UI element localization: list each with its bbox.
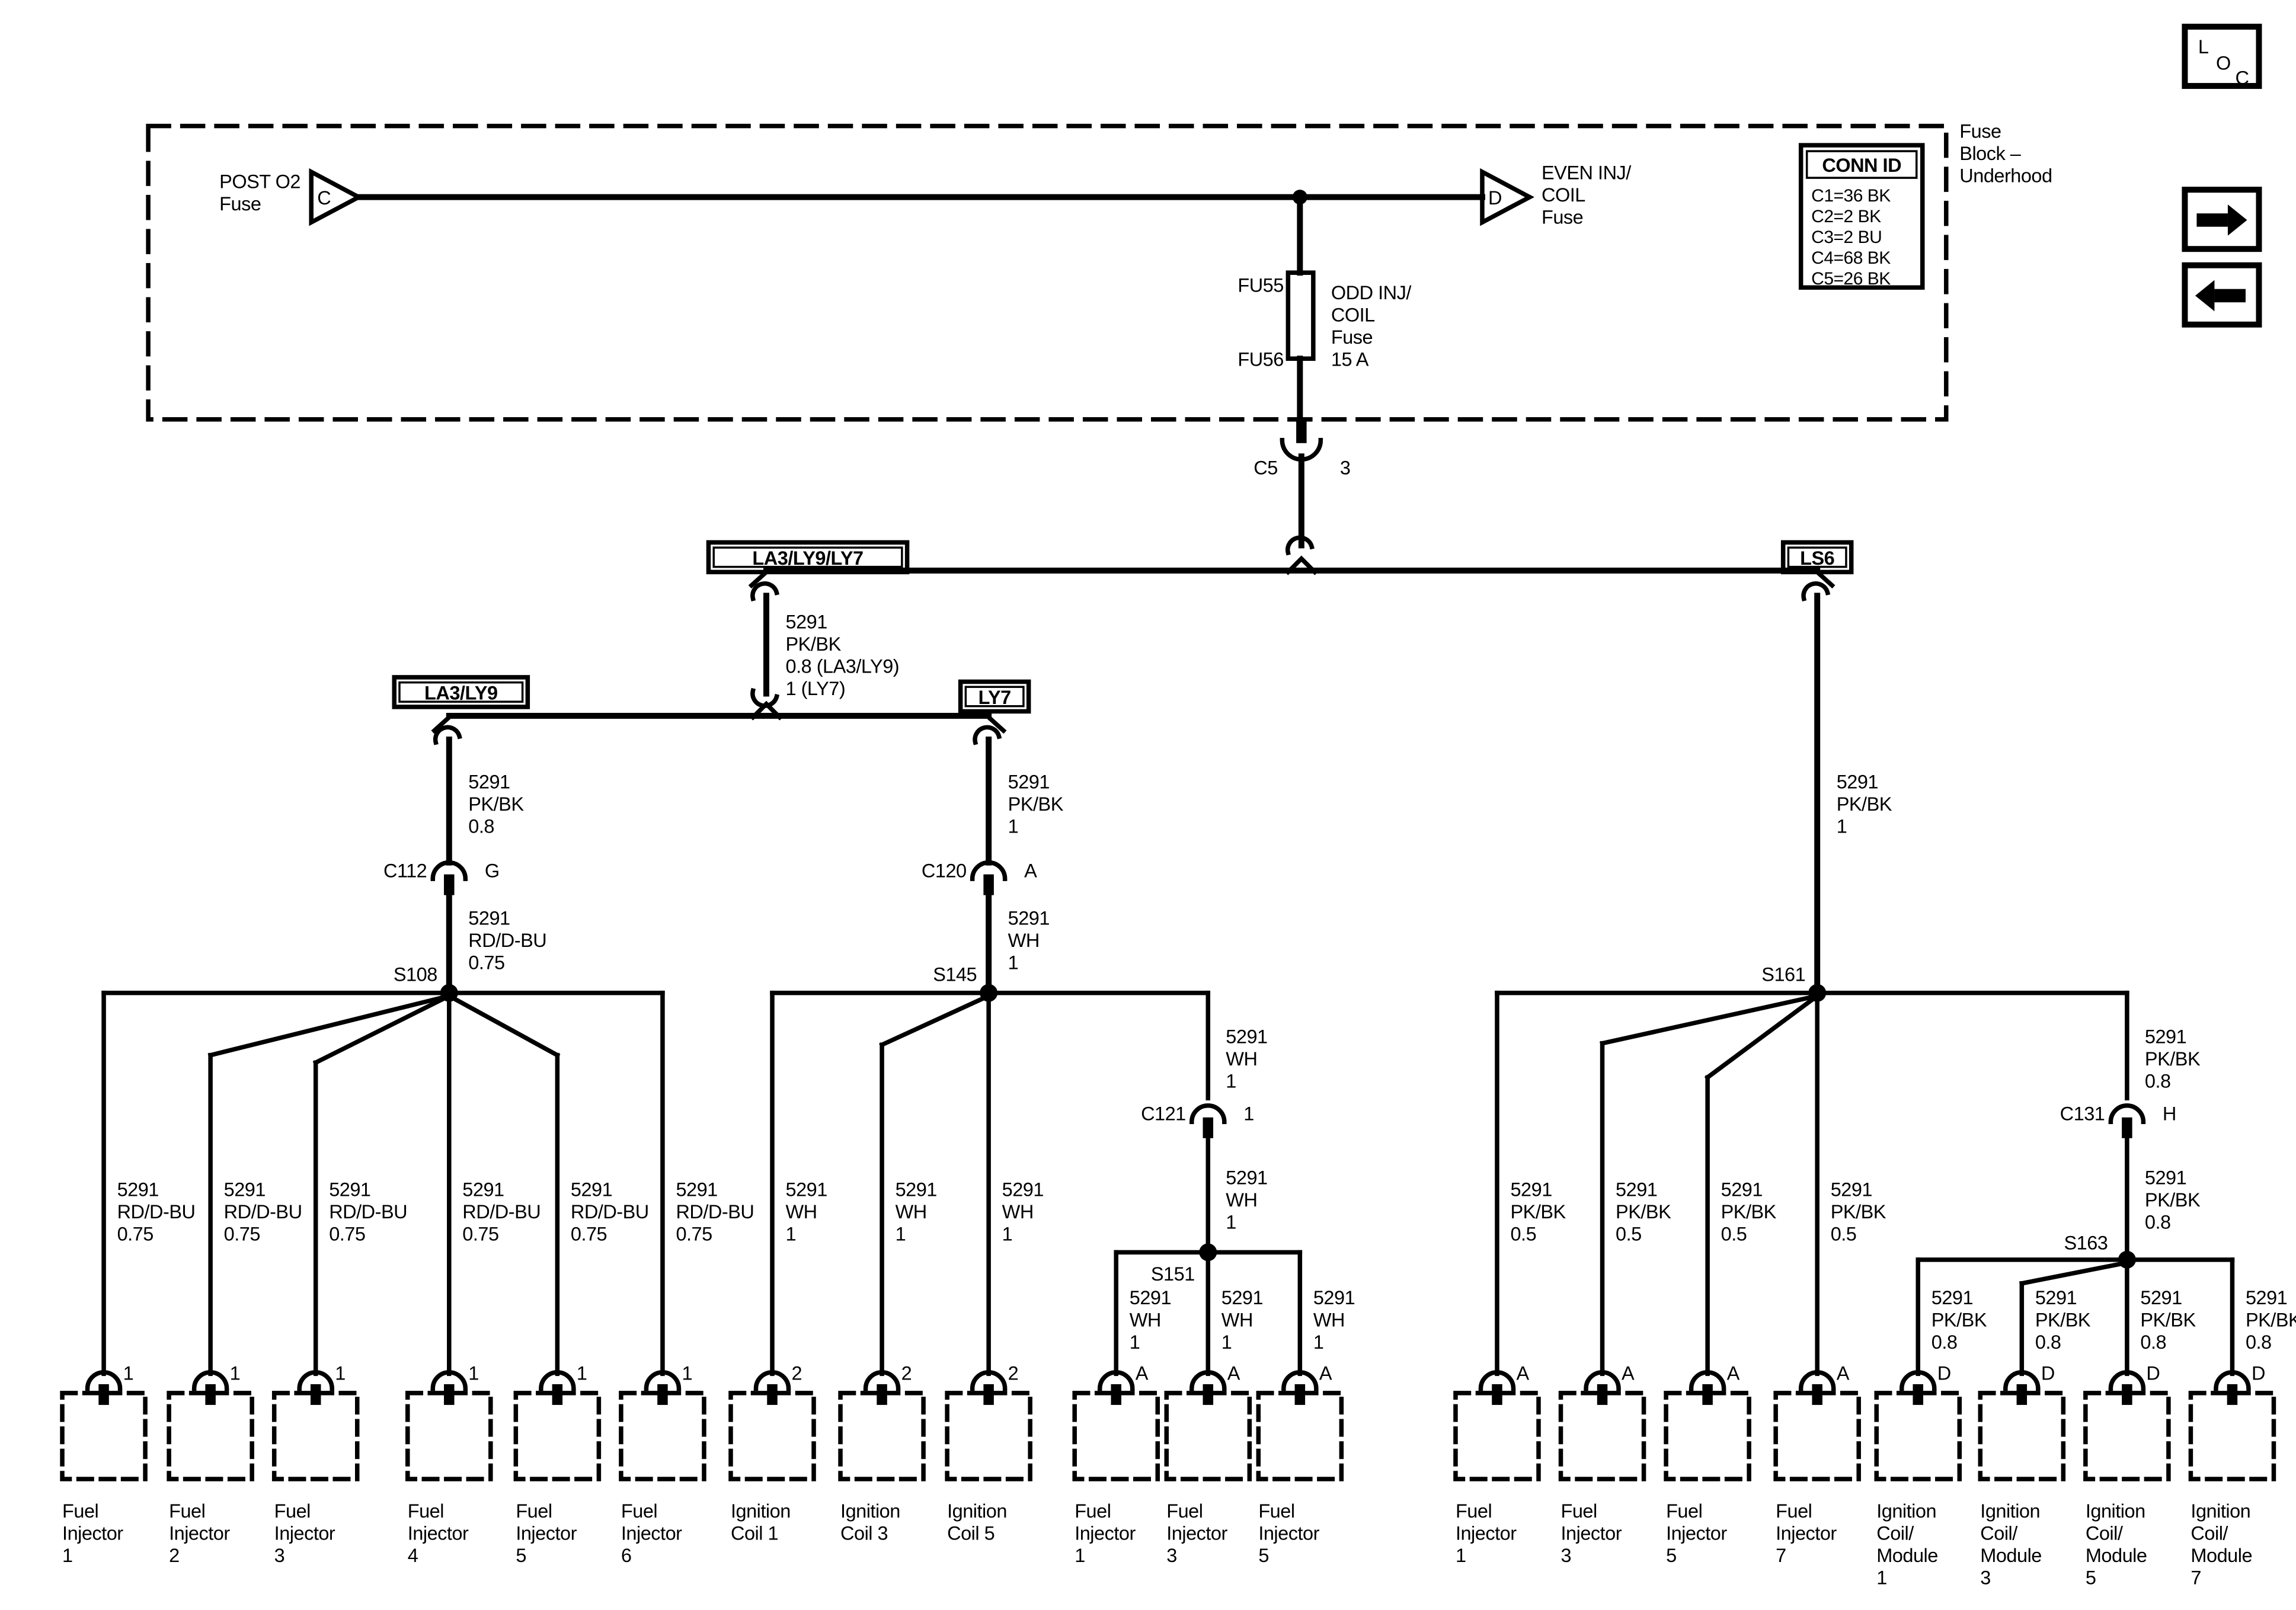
component-connector-icon [194,1372,227,1405]
component-label: Injector [169,1523,230,1544]
conn-id-row: C2=2 BK [1811,207,1881,226]
component-box [274,1393,357,1479]
component-label: Fuel [1258,1500,1294,1522]
svg-text:PK/BK: PK/BK [2145,1189,2201,1211]
component-label: Module [2191,1545,2252,1566]
component-connector-icon [1480,1372,1513,1405]
pin-label: A [1727,1362,1740,1384]
wire-label-c121-lower: 5291 WH 1 [1226,1167,1267,1233]
svg-text:Fuse: Fuse [1959,121,2001,142]
wire-label: 5291 [1221,1287,1263,1308]
component-label: Coil 3 [840,1523,888,1544]
svg-text:5291: 5291 [1837,772,1878,793]
wire-label: RD/D-BU [329,1201,407,1222]
wire-label: 0.75 [329,1223,365,1244]
svg-text:5291: 5291 [2145,1026,2186,1048]
pin-label: D [1937,1362,1951,1384]
pin-label: A [1227,1362,1240,1384]
component-connector-icon [541,1372,574,1405]
component-box [62,1393,145,1479]
component-label: Ignition [840,1500,900,1522]
component-connector-icon [433,1372,465,1405]
pin-label: A [1516,1362,1529,1384]
pin-label: 1 [682,1362,692,1384]
component-label: Ignition [1876,1500,1936,1522]
svg-text:0.8: 0.8 [468,816,494,837]
wire-label: 5291 [571,1179,612,1200]
component-box [169,1393,252,1479]
component-label: 5 [1666,1545,1677,1566]
wire-label: PK/BK [1721,1201,1777,1222]
conn-id-row: C3=2 BU [1811,228,1882,247]
component-connector-icon [756,1372,788,1405]
wire-label: 5291 [117,1179,159,1200]
wire-label: PK/BK [1831,1201,1886,1222]
svg-text:Block –: Block – [1959,143,2022,164]
svg-text:LA3/LY9/LY7: LA3/LY9/LY7 [752,548,863,569]
wire-label-c131-upper: 5291 PK/BK 0.8 [2145,1026,2201,1092]
pin-label: A [1319,1362,1332,1384]
wire-label: 0.8 [2246,1331,2272,1353]
wire-label: RD/D-BU [462,1201,541,1222]
component-label: Coil 1 [731,1523,778,1544]
component-label: Fuel [1075,1500,1111,1522]
wire-label: 5291 [786,1179,827,1200]
svg-text:5291: 5291 [1226,1167,1267,1188]
svg-text:1: 1 [1226,1071,1236,1092]
component-connector-icon [2006,1372,2038,1405]
component-drop: 5291PK/BK0.8DIgnitionCoil/Module3 [1980,1287,2091,1589]
wire-label: PK/BK [1616,1201,1671,1222]
splice-dot-s151 [1199,1243,1217,1261]
component-box [408,1393,491,1479]
svg-text:0.8 (LA3/LY9): 0.8 (LA3/LY9) [786,655,900,677]
wire-label: 5291 [1616,1179,1657,1200]
fuse-id-top: FU55 [1237,275,1283,296]
pin-label: 1 [577,1362,587,1384]
svg-text:PK/BK: PK/BK [468,793,524,815]
component-connector-icon [1691,1372,1724,1405]
inline-connector-c131: C131 H [2060,1103,2176,1138]
svg-text:PK/BK: PK/BK [2145,1048,2201,1070]
pin-label: D [2041,1362,2055,1384]
pin-label: A [1136,1362,1149,1384]
component-label: 1 [1456,1545,1466,1566]
svg-text:PK/BK: PK/BK [786,633,842,655]
wire-label: RD/D-BU [571,1201,649,1222]
wire-label: 1 [1130,1331,1140,1353]
wire-label: 0.5 [1616,1223,1642,1244]
svg-text:1: 1 [1243,1103,1254,1125]
wire-label: 1 [896,1223,906,1244]
component-label: Coil 5 [947,1523,994,1544]
wire-label: 5291 [2035,1287,2077,1308]
pin-label: A [1622,1362,1635,1384]
wire-label: PK/BK [2035,1309,2091,1330]
wire-label-c121-upper: 5291 WH 1 [1226,1026,1267,1092]
component-drop: 5291PK/BK0.5AFuelInjector7 [1776,1179,1886,1566]
component-label: Module [1876,1545,1938,1566]
component-label: Injector [1456,1523,1517,1544]
svg-text:COIL: COIL [1331,305,1375,326]
svg-text:C121: C121 [1141,1103,1186,1125]
component-label: 1 [1876,1567,1887,1589]
splice-dot-s108 [440,984,458,1002]
component-label: Injector [1258,1523,1319,1544]
component-connector-icon [973,1372,1005,1405]
svg-text:EVEN INJ/: EVEN INJ/ [1542,162,1632,184]
splice-label-s161: S161 [1761,964,1805,985]
wire-label: 5291 [224,1179,266,1200]
wiring [104,197,2232,1374]
wire-label: 5291 [896,1179,937,1200]
post-o2-fuse-source: POST O2 Fuse C [219,171,359,223]
wire-label: 5291 [1510,1179,1552,1200]
component-drop: 5291WH1AFuelInjector3 [1166,1287,1263,1566]
svg-text:WH: WH [1226,1189,1257,1211]
splice-dot-s163 [2118,1251,2136,1269]
component-drop: 5291WH12IgnitionCoil 3 [840,1179,937,1544]
component-connector-icon [866,1372,898,1405]
harness-tag-mid: LY7 [961,681,1029,711]
component-drop: 5291PK/BK0.5AFuelInjector5 [1666,1179,1777,1566]
wire-label: WH [1221,1309,1253,1330]
splice-label-s145: S145 [933,964,977,985]
svg-text:PK/BK: PK/BK [1837,793,1892,815]
splice-dot-s145 [980,984,997,1002]
wire-label-ls6: 5291 PK/BK 1 [1837,772,1892,837]
harness-tag-main: LA3/LY9/LY7 [708,542,907,572]
svg-text:5291: 5291 [786,611,827,632]
harness-tag-left: LA3/LY9 [394,677,527,707]
component-drop: 5291PK/BK0.8DIgnitionCoil/Module5 [2086,1287,2196,1589]
fuse-icon [1288,273,1313,359]
component-drop: 5291PK/BK0.8DIgnitionCoil/Module1 [1876,1287,1987,1589]
component-label: Ignition [2191,1500,2250,1522]
svg-text:Fuse: Fuse [1542,207,1583,228]
svg-text:5291: 5291 [2145,1167,2186,1188]
wire-label: 0.8 [2140,1331,2166,1353]
svg-text:Fuse: Fuse [1331,327,1373,348]
component-box [731,1393,814,1479]
svg-text:PK/BK: PK/BK [1008,793,1064,815]
component-label: Fuel [62,1500,98,1522]
pin-label: 2 [901,1362,912,1384]
odd-inj-coil-fuse: FU55 FU56 ODD INJ/ COIL Fuse 15 A [1237,273,1412,370]
inline-connector-c120: C120 A [922,860,1037,895]
wire-label: 0.5 [1721,1223,1747,1244]
wire-label: 0.75 [676,1223,712,1244]
svg-text:5291: 5291 [1008,772,1050,793]
component-label: 4 [408,1545,418,1566]
component-label: 5 [2086,1567,2096,1589]
component-label: 3 [274,1545,285,1566]
conn-id-row: C1=36 BK [1811,186,1891,206]
component-label: 1 [62,1545,73,1566]
component-label: Injector [1776,1523,1837,1544]
svg-text:1: 1 [1226,1211,1236,1233]
component-box [1666,1393,1749,1479]
component-label: Injector [1666,1523,1727,1544]
component-box [1561,1393,1644,1479]
wiring-diagram-canvas: L O C Fuse Block – Underhood CONN ID C1=… [0,0,2296,1609]
splice-label-s151: S151 [1151,1263,1195,1285]
component-box [516,1393,599,1479]
svg-text:0.75: 0.75 [468,952,504,974]
component-drop: 5291PK/BK0.8DIgnitionCoil/Module7 [2191,1287,2296,1589]
prev-page-button[interactable] [2185,265,2259,325]
wire-label: 1 [1313,1331,1324,1353]
arrow-right-icon [2196,204,2247,236]
wire-label: 5291 [329,1179,370,1200]
svg-text:1: 1 [1837,816,1847,837]
junction-dot [1293,190,1307,204]
arrow-left-icon [2195,280,2246,312]
fuse-block-outline [148,126,1946,420]
wire-label: WH [786,1201,817,1222]
wire-label: 5291 [1932,1287,1973,1308]
svg-text:POST O2: POST O2 [219,171,300,193]
inline-connector-c112: C112 G [383,860,500,895]
fuse-block-label: Fuse Block – Underhood [1959,121,2052,187]
svg-text:C131: C131 [2060,1103,2105,1125]
wire-label: WH [1130,1309,1161,1330]
component-connector-icon [646,1372,679,1405]
wire-label: 5291 [462,1179,504,1200]
component-connector-icon [1902,1372,1934,1405]
svg-text:5291: 5291 [468,908,510,929]
svg-text:0.8: 0.8 [2145,1211,2171,1233]
component-label: Fuel [169,1500,205,1522]
component-box [621,1393,704,1479]
splice-label-s108: S108 [394,964,437,985]
wire-label: PK/BK [1510,1201,1566,1222]
conn-id-table: CONN ID C1=36 BK C2=2 BK C3=2 BU C4=68 B… [1801,145,1923,289]
harness-tag-right: LS6 [1783,542,1851,572]
wire-label: 1 [1002,1223,1013,1244]
component-label: Coil/ [2191,1523,2228,1544]
svg-text:Underhood: Underhood [1959,165,2052,187]
component-connector-icon [1192,1372,1224,1405]
wire-label-ly7-upper: 5291 PK/BK 1 [1008,772,1064,837]
svg-text:COIL: COIL [1542,184,1585,206]
svg-text:Fuse: Fuse [219,193,261,215]
svg-text:WH: WH [1008,930,1040,951]
component-label: Injector [516,1523,577,1544]
wire-label: 0.75 [571,1223,607,1244]
wire-label: 5291 [676,1179,717,1200]
component-label: Fuel [1666,1500,1702,1522]
splice-dot-s161 [1808,984,1826,1002]
component-label: Injector [1561,1523,1622,1544]
next-page-button[interactable] [2185,190,2259,249]
component-box [1166,1393,1249,1479]
pin-label: 1 [468,1362,479,1384]
component-label: 1 [1075,1545,1085,1566]
component-connector-icon [88,1372,120,1405]
wire-label: PK/BK [2246,1309,2296,1330]
pin-label: 1 [230,1362,241,1384]
conn-id-title: CONN ID [1822,155,1901,176]
component-label: Ignition [1980,1500,2040,1522]
wire-label: 5291 [1130,1287,1171,1308]
svg-text:LS6: LS6 [1800,548,1834,569]
component-box [2191,1393,2273,1479]
svg-text:C120: C120 [922,860,967,882]
svg-text:ODD INJ/: ODD INJ/ [1331,282,1412,303]
component-label: Fuel [1561,1500,1597,1522]
wire-label: 0.8 [1932,1331,1958,1353]
component-drop: 5291WH12IgnitionCoil 5 [947,1179,1044,1544]
wire-label: 5291 [1721,1179,1763,1200]
splice-label-s163: S163 [2064,1232,2108,1253]
component-connector-icon [1100,1372,1133,1405]
component-connector-icon [1586,1372,1619,1405]
component-label: Injector [408,1523,469,1544]
loc-letter-c: C [2235,68,2249,89]
component-box [1980,1393,2063,1479]
component-label: Injector [274,1523,335,1544]
component-label: 7 [1776,1545,1786,1566]
pin-label: 2 [1008,1362,1019,1384]
wire-label: 5291 [1313,1287,1355,1308]
component-label: Coil/ [1980,1523,2018,1544]
svg-text:15 A: 15 A [1331,349,1369,370]
component-label: Fuel [516,1500,552,1522]
component-label: Fuel [1456,1500,1492,1522]
component-connector-icon [299,1372,332,1405]
wire-label: 5291 [1831,1179,1872,1200]
wire-label-main-feed: 5291 PK/BK 0.8 (LA3/LY9) 1 (LY7) [786,611,900,699]
component-label: Fuel [1776,1500,1812,1522]
component-label: Ignition [947,1500,1007,1522]
component-label: Module [2086,1545,2147,1566]
component-label: Fuel [408,1500,444,1522]
component-label: 5 [516,1545,526,1566]
svg-text:1: 1 [1008,816,1019,837]
svg-text:WH: WH [1226,1048,1257,1070]
svg-text:5291: 5291 [468,772,510,793]
wire-label: 0.75 [462,1223,498,1244]
component-label: Fuel [274,1500,311,1522]
wire-label: 5291 [2140,1287,2182,1308]
component-label: 7 [2191,1567,2201,1589]
wire-label-la3ly9-lower: 5291 RD/D-BU 0.75 [468,908,546,974]
component-connector-icon [2110,1372,2143,1405]
pin-label: 2 [792,1362,802,1384]
component-box [1776,1393,1859,1479]
svg-text:1 (LY7): 1 (LY7) [786,678,846,699]
wire-label: 0.8 [2035,1331,2061,1353]
svg-text:G: G [485,860,500,882]
triangle-d-pin: D [1488,187,1502,209]
component-label: 3 [1980,1567,1991,1589]
wire-label: WH [1002,1201,1034,1222]
even-inj-coil-fuse-dest: D EVEN INJ/ COIL Fuse [1482,162,1632,228]
svg-text:H: H [2163,1103,2176,1125]
component-label: Injector [1166,1523,1227,1544]
component-connector-icon [1284,1372,1316,1405]
wire-label: RD/D-BU [676,1201,754,1222]
svg-text:1: 1 [1008,952,1019,974]
wire-label: 0.5 [1831,1223,1857,1244]
svg-text:LA3/LY9: LA3/LY9 [424,682,498,703]
pin-label: D [2146,1362,2160,1384]
triangle-c-pin: C [317,187,331,209]
component-box [2086,1393,2169,1479]
wire-label: RD/D-BU [224,1201,302,1222]
loc-letter-l: L [2198,36,2209,57]
wire-label: 0.5 [1510,1223,1536,1244]
component-box [840,1393,923,1479]
component-label: Injector [1075,1523,1136,1544]
component-label: 2 [169,1545,180,1566]
svg-text:5291: 5291 [1008,908,1050,929]
component-label: Coil/ [1876,1523,1914,1544]
svg-text:C112: C112 [383,860,427,882]
svg-text:5291: 5291 [1226,1026,1267,1048]
pin-label: 1 [123,1362,134,1384]
component-label: Ignition [731,1500,791,1522]
wire-label: PK/BK [2140,1309,2196,1330]
component-drop: 5291WH1AFuelInjector5 [1258,1287,1355,1566]
component-label: 3 [1561,1545,1572,1566]
pin-label: A [1837,1362,1850,1384]
wire-label-la3ly9-upper: 5291 PK/BK 0.8 [468,772,524,837]
wire-label: 0.75 [224,1223,260,1244]
component-label: Module [1980,1545,2042,1566]
component-label: 6 [621,1545,632,1566]
component-drop: 5291WH12IgnitionCoil 1 [731,1179,827,1544]
svg-text:C5: C5 [1253,457,1278,478]
wire-label-ly7-lower: 5291 WH 1 [1008,908,1050,974]
component-drop: 5291PK/BK0.5AFuelInjector3 [1561,1179,1672,1566]
svg-text:RD/D-BU: RD/D-BU [468,930,546,951]
component-connector-icon [1801,1372,1834,1405]
wire-label: 0.75 [117,1223,154,1244]
wire-label: 5291 [1002,1179,1044,1200]
wire-label: RD/D-BU [117,1201,196,1222]
component-label: Injector [621,1523,682,1544]
component-connector-icon [2216,1372,2249,1405]
fuse-id-bottom: FU56 [1237,349,1283,370]
conn-id-row: C5=26 BK [1811,269,1891,289]
conn-id-row: C4=68 BK [1811,248,1891,268]
component-label: 3 [1166,1545,1177,1566]
pin-label: D [2252,1362,2265,1384]
svg-text:3: 3 [1340,457,1351,478]
component-box [947,1393,1030,1479]
svg-text:LY7: LY7 [978,687,1011,708]
inline-connector-c121: C121 1 [1141,1103,1254,1138]
loc-button[interactable]: L O C [2185,27,2259,89]
svg-text:A: A [1024,860,1037,882]
wire-label: WH [1313,1309,1345,1330]
wire-label: 5291 [2246,1287,2287,1308]
component-label: Coil/ [2086,1523,2124,1544]
component-box [1876,1393,1959,1479]
wire-label: PK/BK [1932,1309,1987,1330]
component-box [1075,1393,1157,1479]
wire-label-c131-lower: 5291 PK/BK 0.8 [2145,1167,2201,1233]
component-box [1258,1393,1341,1479]
svg-text:0.8: 0.8 [2145,1071,2171,1092]
component-drop: 5291PK/BK0.5AFuelInjector1 [1456,1179,1566,1566]
wire-label: 1 [1221,1331,1232,1353]
loc-letter-o: O [2216,53,2231,74]
component-label: Fuel [621,1500,657,1522]
wire-label: WH [896,1201,927,1222]
